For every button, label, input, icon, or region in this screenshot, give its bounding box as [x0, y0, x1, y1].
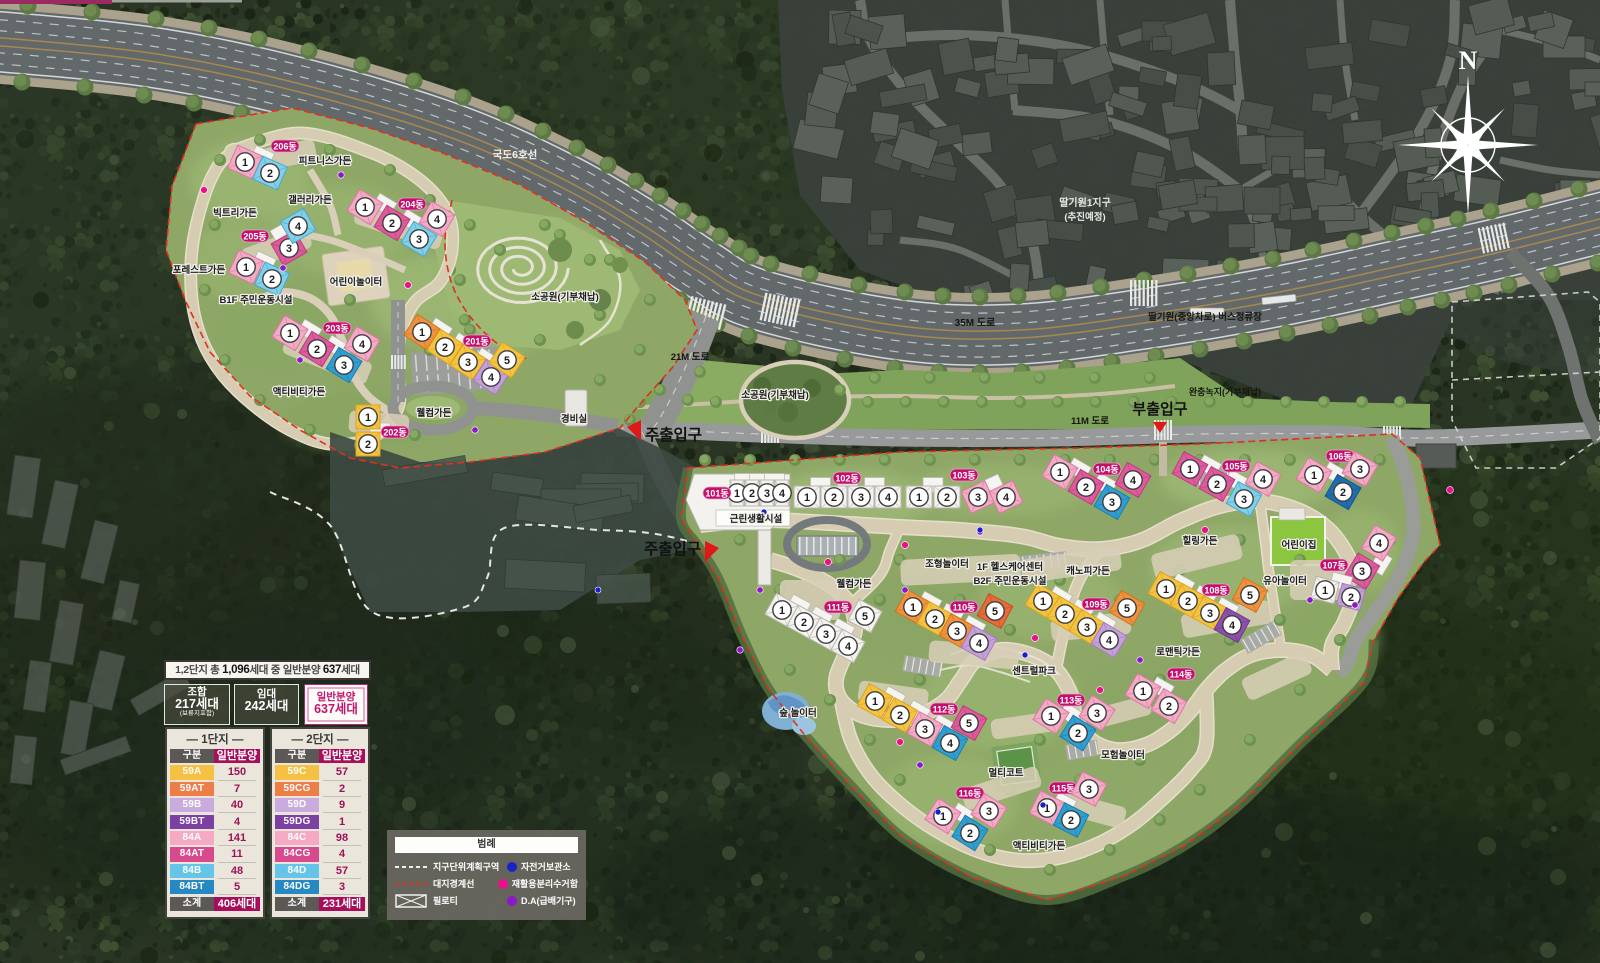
svg-text:경비실: 경비실	[561, 413, 587, 425]
svg-text:5: 5	[966, 718, 972, 730]
svg-text:2: 2	[831, 492, 837, 504]
svg-text:108동: 108동	[1204, 585, 1227, 595]
svg-text:114동: 114동	[1170, 669, 1193, 679]
svg-text:주출입구: 주출입구	[645, 426, 702, 444]
svg-text:2: 2	[1068, 815, 1074, 827]
svg-text:4: 4	[779, 488, 785, 500]
svg-text:2: 2	[1166, 701, 1172, 713]
svg-text:피트니스가든: 피트니스가든	[299, 155, 352, 167]
svg-text:3: 3	[1241, 494, 1247, 506]
svg-text:101동: 101동	[705, 488, 728, 498]
svg-text:102동: 102동	[835, 473, 858, 483]
svg-text:203동: 203동	[325, 323, 348, 333]
svg-text:근린생활시설: 근린생활시설	[730, 513, 783, 525]
svg-text:3: 3	[986, 806, 992, 818]
svg-text:115동: 115동	[1052, 783, 1075, 793]
svg-text:107동: 107동	[1322, 560, 1345, 570]
svg-text:3: 3	[922, 724, 928, 736]
svg-text:4: 4	[488, 372, 494, 384]
svg-text:2: 2	[1075, 728, 1081, 740]
svg-text:3: 3	[975, 492, 981, 504]
svg-text:B2F 주민운동시설: B2F 주민운동시설	[973, 575, 1046, 587]
svg-text:3: 3	[1094, 708, 1100, 720]
svg-text:3: 3	[286, 243, 292, 255]
svg-text:2: 2	[1348, 592, 1354, 604]
svg-text:N: N	[1459, 46, 1478, 75]
svg-text:1: 1	[1140, 686, 1146, 698]
svg-text:1: 1	[365, 412, 371, 424]
svg-text:국도6호선: 국도6호선	[493, 148, 537, 161]
svg-text:3: 3	[1357, 464, 1363, 476]
svg-text:1: 1	[243, 262, 249, 274]
svg-text:1: 1	[1163, 584, 1169, 596]
svg-text:2: 2	[314, 344, 320, 356]
svg-text:1: 1	[872, 696, 878, 708]
svg-text:어린이집: 어린이집	[1282, 539, 1317, 551]
svg-text:116동: 116동	[959, 788, 982, 798]
svg-text:1: 1	[916, 492, 922, 504]
svg-text:105동: 105동	[1224, 461, 1247, 471]
svg-text:1F 헬스케어센터: 1F 헬스케어센터	[977, 561, 1043, 573]
svg-text:갤러리가든: 갤러리가든	[288, 194, 332, 206]
svg-text:4: 4	[885, 492, 891, 504]
svg-text:5: 5	[504, 355, 510, 367]
svg-text:110동: 110동	[953, 602, 976, 612]
svg-text:딸기원(중앙차로) 버스정류장: 딸기원(중앙차로) 버스정류장	[1148, 311, 1262, 323]
svg-text:202동: 202동	[383, 427, 406, 437]
svg-text:103동: 103동	[952, 470, 975, 480]
svg-text:1: 1	[1322, 585, 1328, 597]
svg-text:모험놀이터: 모험놀이터	[1101, 749, 1145, 761]
svg-text:1: 1	[1311, 470, 1317, 482]
svg-text:1: 1	[804, 492, 810, 504]
svg-text:112동: 112동	[933, 704, 956, 714]
svg-text:2: 2	[1062, 609, 1068, 621]
svg-text:유아놀이터: 유아놀이터	[1263, 575, 1307, 587]
svg-text:소공원(기부채납): 소공원(기부채납)	[531, 291, 599, 303]
svg-text:빅트리가든: 빅트리가든	[213, 207, 257, 219]
svg-text:어린이놀이터: 어린이놀이터	[330, 276, 382, 288]
svg-text:2: 2	[1185, 596, 1191, 608]
svg-text:조형놀이터: 조형놀이터	[925, 558, 969, 570]
svg-text:2: 2	[801, 617, 807, 629]
svg-text:2: 2	[389, 218, 395, 230]
svg-text:3: 3	[858, 492, 864, 504]
svg-text:21M 도로: 21M 도로	[671, 352, 710, 363]
svg-text:웰컴가든: 웰컴가든	[417, 407, 452, 419]
svg-text:3: 3	[823, 629, 829, 641]
svg-text:201동: 201동	[465, 336, 488, 346]
svg-text:숲 놀이터: 숲 놀이터	[779, 707, 817, 719]
svg-text:2: 2	[1214, 479, 1220, 491]
svg-text:5: 5	[1124, 603, 1130, 615]
svg-text:11M 도로: 11M 도로	[1071, 416, 1109, 427]
svg-text:35M 도로: 35M 도로	[955, 317, 996, 329]
svg-text:5: 5	[862, 611, 868, 623]
svg-text:1: 1	[910, 602, 916, 614]
svg-text:소공원(기부채납): 소공원(기부채납)	[741, 389, 809, 401]
svg-text:3: 3	[954, 626, 960, 638]
svg-text:3: 3	[1086, 784, 1092, 796]
svg-text:로맨틱가든: 로맨틱가든	[1156, 646, 1200, 658]
svg-text:4: 4	[845, 641, 851, 653]
svg-text:1: 1	[779, 605, 785, 617]
svg-text:2: 2	[1340, 487, 1346, 499]
svg-text:4: 4	[1106, 635, 1112, 647]
svg-text:111동: 111동	[827, 602, 849, 612]
svg-text:1: 1	[1187, 464, 1193, 476]
svg-text:109동: 109동	[1084, 599, 1107, 609]
svg-text:2: 2	[365, 439, 371, 451]
svg-text:2: 2	[897, 710, 903, 722]
svg-text:4: 4	[1130, 475, 1136, 487]
svg-text:(추진예정): (추진예정)	[1064, 211, 1105, 223]
svg-text:1: 1	[1057, 467, 1063, 479]
svg-text:3: 3	[1207, 608, 1213, 620]
svg-text:3: 3	[1109, 497, 1115, 509]
svg-text:2: 2	[944, 492, 950, 504]
svg-text:1: 1	[734, 488, 740, 500]
svg-text:206동: 206동	[273, 141, 296, 151]
svg-text:5: 5	[1247, 590, 1253, 602]
svg-text:4: 4	[434, 214, 440, 226]
svg-text:웰컴가든: 웰컴가든	[837, 578, 872, 590]
svg-text:2: 2	[1083, 482, 1089, 494]
svg-text:1: 1	[362, 202, 368, 214]
svg-text:4: 4	[947, 738, 953, 750]
svg-text:멀티코트: 멀티코트	[989, 767, 1024, 779]
svg-text:캐노피가든: 캐노피가든	[1066, 565, 1110, 577]
svg-text:1: 1	[419, 327, 425, 339]
svg-text:204동: 204동	[400, 199, 423, 209]
svg-text:4: 4	[1260, 474, 1266, 486]
svg-text:센트럴파크: 센트럴파크	[1012, 665, 1056, 677]
svg-text:3: 3	[341, 360, 347, 372]
svg-text:2: 2	[267, 168, 273, 180]
svg-text:힐링가든: 힐링가든	[1183, 535, 1218, 547]
svg-text:3: 3	[465, 357, 471, 369]
svg-text:액티비티가든: 액티비티가든	[1013, 840, 1066, 852]
svg-text:106동: 106동	[1328, 451, 1351, 461]
svg-text:4: 4	[1003, 492, 1009, 504]
svg-text:1: 1	[242, 157, 248, 169]
svg-text:4: 4	[1229, 620, 1235, 632]
svg-text:113동: 113동	[1060, 695, 1083, 705]
svg-text:B1F 주민운동시설: B1F 주민운동시설	[219, 294, 292, 306]
svg-text:2: 2	[967, 828, 973, 840]
svg-text:4: 4	[359, 339, 365, 351]
svg-text:205동: 205동	[243, 231, 266, 241]
svg-text:104동: 104동	[1095, 464, 1118, 474]
svg-text:4: 4	[295, 221, 301, 233]
svg-text:4: 4	[1376, 538, 1382, 550]
svg-text:3: 3	[764, 488, 770, 500]
svg-text:포레스트가든: 포레스트가든	[173, 264, 226, 276]
svg-text:딸기원1지구: 딸기원1지구	[1059, 196, 1111, 209]
svg-text:2: 2	[932, 614, 938, 626]
svg-text:1: 1	[1048, 711, 1054, 723]
svg-text:주출입구: 주출입구	[644, 540, 701, 558]
svg-text:3: 3	[1359, 566, 1365, 578]
svg-text:1: 1	[1040, 596, 1046, 608]
svg-text:4: 4	[976, 638, 982, 650]
svg-text:3: 3	[416, 234, 422, 246]
svg-text:1: 1	[287, 328, 293, 340]
svg-text:3: 3	[1084, 622, 1090, 634]
svg-text:완충녹지(기부채납): 완충녹지(기부채납)	[1189, 386, 1261, 397]
svg-text:부출입구: 부출입구	[1132, 401, 1187, 418]
svg-text:2: 2	[749, 488, 755, 500]
svg-text:2: 2	[269, 274, 275, 286]
svg-text:5: 5	[992, 606, 998, 618]
svg-text:2: 2	[442, 342, 448, 354]
svg-text:액티비티가든: 액티비티가든	[273, 386, 326, 398]
